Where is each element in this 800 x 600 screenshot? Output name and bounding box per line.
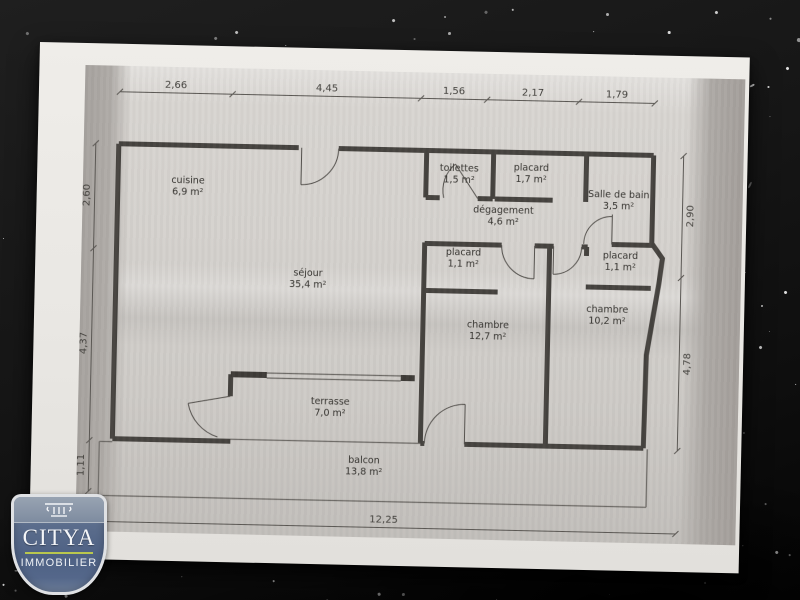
terrace-door [187,395,230,437]
floor-plan-drawing: 2,664,451,562,171,792,604,371,112,904,78… [75,65,745,545]
dimension-label: 4,45 [316,83,339,94]
column-capital-icon [42,501,76,519]
room-label-cuisine: cuisine6,9 m² [171,175,205,198]
dimension-label: 2,90 [685,205,696,228]
dimension-label: 4,37 [78,332,89,355]
dimension-label: 2,60 [81,184,92,207]
room-label-placard-chambre1: placard1,1 m² [445,247,481,270]
toilet-door [443,164,479,199]
bathroom-door [584,214,613,245]
balcony-outline [98,436,647,507]
room-label-salle-de-bain: Salle de bain3,5 m² [588,189,650,213]
dimension-labels: 2,664,451,562,171,792,604,371,112,904,78… [75,78,699,532]
dimension-label: 1,79 [606,89,629,100]
brand-tagline: IMMOBILIER [21,557,98,569]
doors-layer [187,145,613,447]
logo-divider [25,552,93,554]
entrance-door [301,148,339,186]
bedroom1-balcony-door [424,403,465,444]
dimension-label: 2,66 [165,80,188,91]
bedroom2-door [553,246,582,275]
room-labels: cuisine6,9 m²séjour35,4 m²toilettes1,5 m… [165,155,650,484]
walls-layer [112,144,664,451]
room-label-toilettes: toilettes1,5 m² [440,163,479,186]
citya-logo-badge: CITYA IMMOBILIER [11,494,107,595]
room-label-chambre1: chambre12,7 m² [467,319,510,342]
room-label-placard-chambre2: placard1,1 m² [602,250,638,273]
granite-countertop-photo: 2,664,451,562,171,792,604,371,112,904,78… [0,0,800,600]
brand-name: CITYA [23,525,96,550]
terrace-window-jambs [231,374,415,378]
room-label-sejour: séjour35,4 m² [289,267,327,290]
printed-plan-area: 2,664,451,562,171,792,604,371,112,904,78… [75,65,745,545]
dimension-label: 2,17 [522,88,545,99]
logo-top-band [14,497,104,523]
dimension-label: 1,11 [76,454,87,477]
room-label-balcon: balcon13,8 m² [345,455,383,478]
room-label-terrasse: terrasse7,0 m² [310,396,349,419]
floor-plan-paper: 2,664,451,562,171,792,604,371,112,904,78… [29,42,750,573]
bedroom1-door [501,245,535,279]
terrace-window-glazing [267,373,401,381]
dimension-label: 4,78 [682,353,693,376]
room-label-placard-entree: placard1,7 m² [513,162,549,185]
room-label-chambre2: chambre10,2 m² [586,304,629,327]
dimension-lines [84,88,687,537]
dimension-label: 1,56 [443,86,466,97]
dimension-label: 12,25 [369,514,398,526]
room-label-degagement: dégagement4,6 m² [473,204,534,228]
